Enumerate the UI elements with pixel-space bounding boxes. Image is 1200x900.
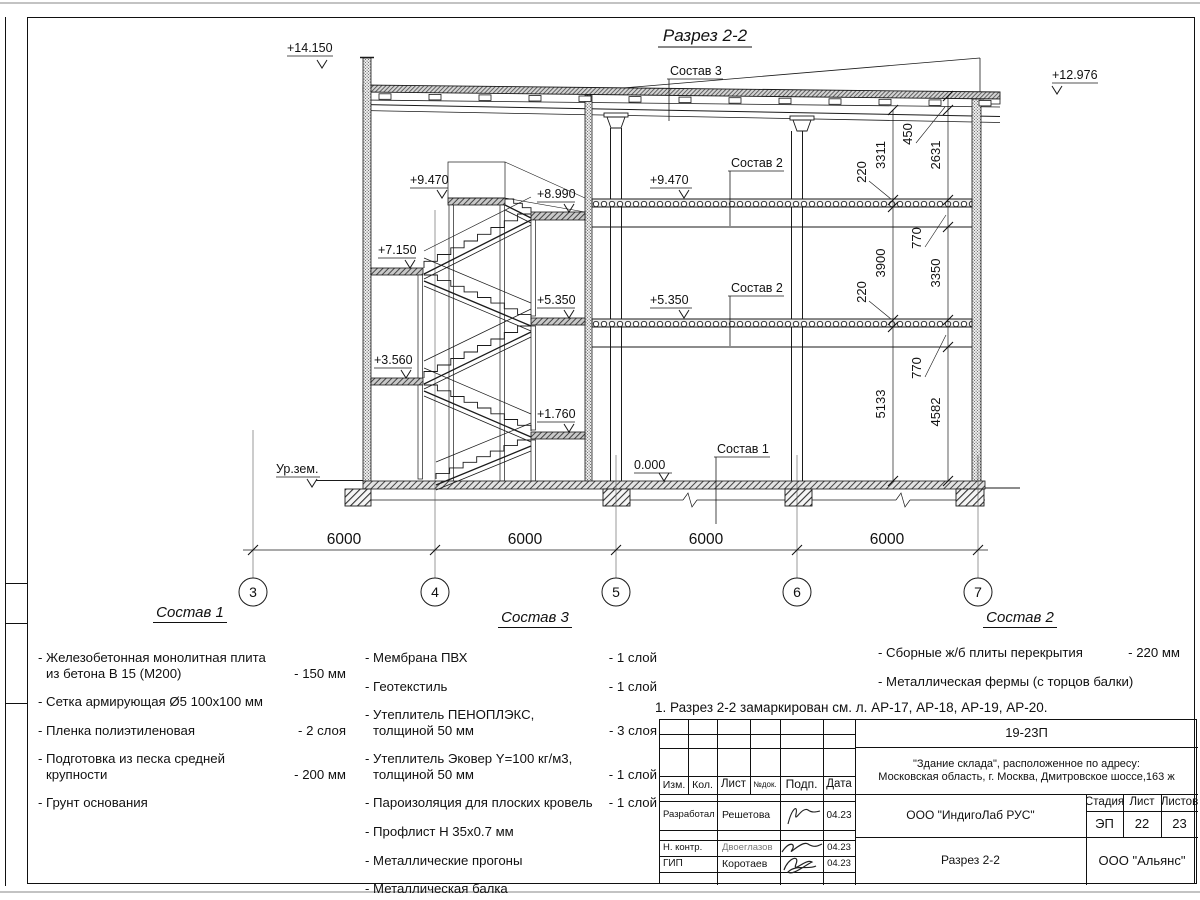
- legend-item: - Сетка армирующая Ø5 100х100 мм: [38, 694, 346, 710]
- dimension-value: 3311: [873, 141, 888, 169]
- floor-slab-level1: [592, 319, 972, 327]
- leader-label: Состав 2: [731, 156, 783, 170]
- legend1-title: Состав 1: [40, 604, 340, 623]
- col-header-list: Лист: [717, 776, 750, 794]
- stair-landing: [448, 198, 505, 205]
- dim-leader: [869, 301, 891, 319]
- leader-label: Состав 3: [670, 64, 722, 78]
- row-name: Коротаев: [719, 856, 780, 872]
- drawing-title: Разрез 2-2: [663, 26, 748, 45]
- legend2-title: Состав 2: [870, 609, 1170, 628]
- legend-item: - Профлист Н 35х0.7 мм: [365, 824, 657, 840]
- legend-item: - Металлическая фермы (с торцов балки): [878, 674, 1180, 690]
- dimension-value: 6000: [508, 531, 543, 548]
- dimension-value: 3350: [928, 259, 943, 288]
- sheets-label: Листов: [1161, 794, 1198, 811]
- col-header-izm: Изм.: [660, 776, 688, 794]
- legend-item: - Сборные ж/б плиты перекрытия - 220 мм: [878, 645, 1180, 661]
- structure: [239, 56, 1098, 606]
- dim-leader: [925, 335, 946, 377]
- stair-post: [449, 205, 454, 481]
- elevation-label: +7.150: [378, 243, 417, 257]
- elevation-label: +1.760: [537, 407, 576, 421]
- dimension-value: 220: [854, 281, 869, 303]
- stair-post: [531, 440, 536, 481]
- column-capital: [793, 120, 811, 131]
- col-header-ndok: №док.: [750, 776, 780, 794]
- axis-number: 4: [431, 584, 439, 600]
- legend-item: - Пленка полиэтиленовая - 2 слоя: [38, 723, 346, 739]
- dimension-value: 220: [854, 161, 869, 183]
- row-role: Разработал: [660, 801, 717, 830]
- break-mark: [683, 493, 697, 507]
- project-object: "Здание склада", расположенное по адресу…: [855, 747, 1198, 794]
- leader-label: Состав 1: [717, 442, 769, 456]
- foundation: [345, 489, 371, 506]
- drawing-note: 1. Разрез 2-2 замаркирован см. л. АР-17,…: [655, 700, 1047, 715]
- elevation-label: +5.350: [537, 293, 576, 307]
- sheet-name: Разрез 2-2: [855, 837, 1086, 885]
- dimension-value: 450: [900, 123, 915, 145]
- axis-number: 5: [612, 584, 620, 600]
- legend-item: - Утеплитель ПЕНОПЛЭКС,толщиной 50 мм - …: [365, 707, 657, 738]
- row-date: 04.23: [823, 856, 855, 872]
- legend-item: - Пароизоляция для плоских кровель - 1 с…: [365, 795, 657, 811]
- leader-label: Состав 2: [731, 281, 783, 295]
- row-name: Двоеглазов: [719, 840, 780, 856]
- legend3-title: Состав 3: [385, 609, 685, 628]
- axis-number: 7: [974, 584, 982, 600]
- legend-item: - Мембрана ПВХ - 1 слой: [365, 650, 657, 666]
- signature: [782, 798, 824, 834]
- axis-number: 6: [793, 584, 801, 600]
- legend-item: - Железобетонная монолитная плитаиз бето…: [38, 650, 346, 681]
- elevation-label: +9.470: [410, 173, 449, 187]
- stair-landing: [531, 432, 585, 439]
- elevation-label: 0.000: [634, 458, 665, 472]
- col-header-kol: Кол.: [688, 776, 717, 794]
- signature: [778, 836, 826, 882]
- legend-item: - Металлические прогоны: [365, 853, 657, 869]
- margin-divider: [5, 703, 27, 704]
- section-drawing: Разрез 2-2 +14.150 +12.976 +9.470 +8.990…: [0, 0, 1200, 680]
- dimension-value: 5133: [873, 390, 888, 419]
- ground-level-label: Ур.зем.: [276, 462, 318, 476]
- dim-leader: [925, 215, 946, 247]
- legend-item: - Грунт основания: [38, 795, 346, 811]
- dimension-value: 6000: [327, 531, 362, 548]
- sheet-value: 22: [1123, 811, 1161, 837]
- legend3: - Мембрана ПВХ - 1 слой - Геотекстиль - …: [365, 650, 657, 900]
- stair-railing-top: [448, 162, 505, 198]
- contractor: ООО "Альянс": [1086, 837, 1198, 885]
- column-capital: [604, 113, 628, 117]
- row-date: 04.23: [823, 801, 855, 830]
- stage-value: ЭП: [1086, 811, 1123, 837]
- right-wall: [972, 99, 981, 481]
- col-header-data: Дата: [823, 776, 855, 794]
- stage-label: Стадия: [1086, 794, 1123, 811]
- legend-item: - Подготовка из песка среднейкрупности -…: [38, 751, 346, 782]
- column-capital: [607, 117, 625, 128]
- dim-leader: [869, 181, 891, 199]
- row-role: ГИП: [660, 856, 717, 872]
- dimension-value: 6000: [870, 531, 905, 548]
- sheet-label: Лист: [1123, 794, 1161, 811]
- dimension-value: 3900: [873, 249, 888, 278]
- col-header-podp: Подп.: [780, 776, 823, 794]
- stairwell-wall: [585, 95, 592, 481]
- foundation: [785, 489, 812, 506]
- stair-landing: [531, 212, 585, 220]
- left-wall: [363, 58, 371, 481]
- elevation-label: +12.976: [1052, 68, 1098, 82]
- elevation-label: +8.990: [537, 187, 576, 201]
- foundation: [603, 489, 630, 506]
- elevation-label: +14.150: [287, 41, 333, 55]
- design-company: ООО "ИндигоЛаб РУС": [855, 794, 1086, 837]
- floor-slab-level2: [592, 199, 972, 207]
- legend-item: - Утеплитель Эковер Y=100 кг/м3,толщиной…: [365, 751, 657, 782]
- dimension-value: 770: [909, 357, 924, 379]
- axis-number: 3: [249, 584, 257, 600]
- row-role: Н. контр.: [660, 840, 717, 856]
- dimension-value: 770: [909, 227, 924, 249]
- column-capital: [790, 116, 814, 120]
- stair-landing: [371, 378, 423, 385]
- elevation-label: +9.470: [650, 173, 689, 187]
- elevation-label: +3.560: [374, 353, 413, 367]
- elevation-label: +5.350: [650, 293, 689, 307]
- dimension-value: 4582: [928, 398, 943, 427]
- title-block: Изм. Кол. Лист №док. Подп. Дата Разработ…: [659, 719, 1197, 884]
- row-name: Решетова: [719, 801, 780, 830]
- stair-post: [500, 205, 505, 481]
- stair-post: [531, 326, 536, 430]
- break-mark: [896, 493, 910, 507]
- stair-landing: [371, 268, 423, 275]
- sheets-value: 23: [1161, 811, 1198, 837]
- legend-item: - Геотекстиль - 1 слой: [365, 679, 657, 695]
- legend1: - Железобетонная монолитная плитаиз бето…: [38, 650, 346, 824]
- legend2: - Сборные ж/б плиты перекрытия - 220 мм …: [878, 645, 1180, 702]
- drawing-sheet: Разрез 2-2 +14.150 +12.976 +9.470 +8.990…: [0, 0, 1200, 900]
- stair-post: [418, 275, 423, 378]
- legend-item: - Металлическая балка: [365, 881, 657, 897]
- project-code: 19-23П: [855, 720, 1198, 747]
- dimension-value: 2631: [928, 141, 943, 170]
- dim-leader: [916, 107, 945, 143]
- row-date: 04.23: [823, 840, 855, 856]
- stair-post: [531, 220, 536, 316]
- roof-beam-bottom-chord: [363, 111, 1000, 123]
- stair-post: [418, 385, 423, 479]
- dimension-value: 6000: [689, 531, 724, 548]
- foundation: [956, 489, 984, 506]
- stair-landing: [531, 318, 585, 325]
